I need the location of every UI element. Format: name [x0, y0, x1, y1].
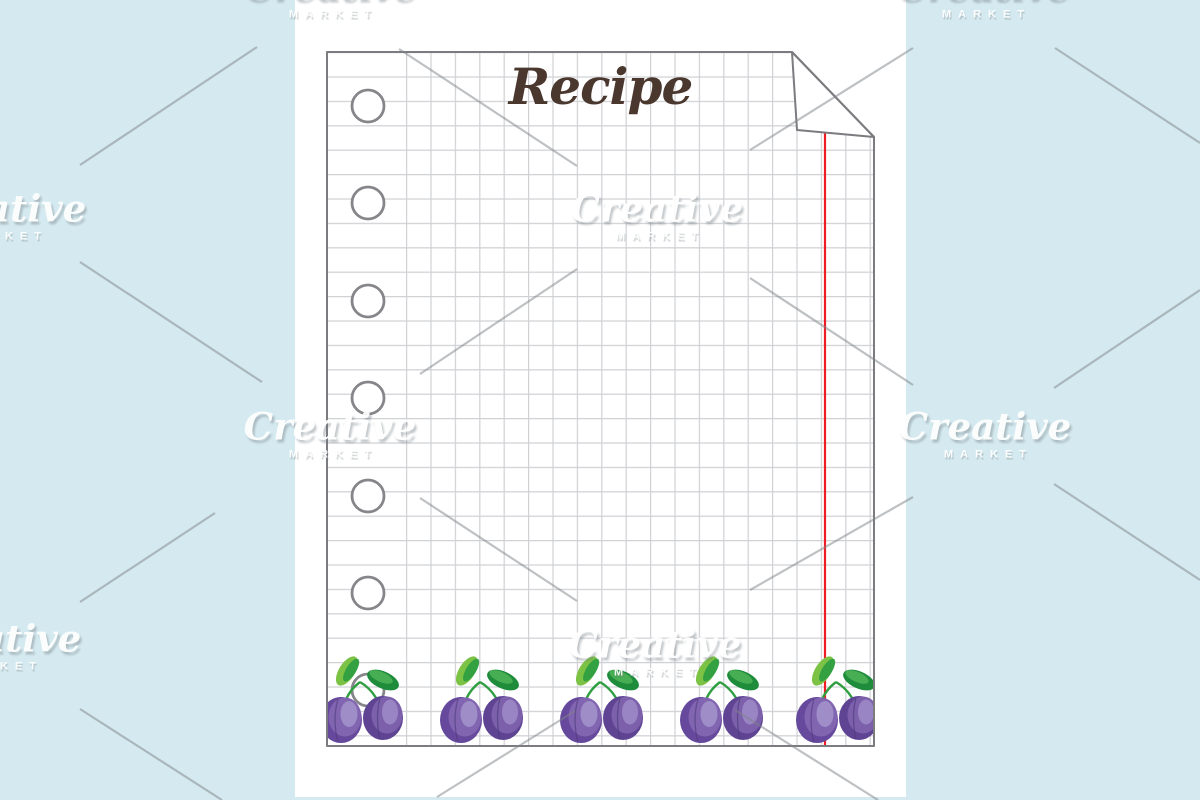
watermark-script-text: Creative — [244, 408, 417, 446]
watermark-logo: CreativeMARKET — [899, 408, 1072, 461]
watermark-logo: CreativeMARKET — [0, 620, 81, 673]
watermark-script-text: Creative — [571, 190, 744, 228]
watermark-caps-text: MARKET — [571, 231, 744, 243]
watermark-script-text: Creative — [0, 190, 86, 228]
watermark-logo: CreativeMARKET — [0, 190, 86, 243]
watermark-logos: CreativeMARKETCreativeMARKETCreativeMARK… — [0, 0, 1200, 800]
watermark-caps-text: MARKET — [899, 449, 1072, 461]
watermark-script-text: Creative — [569, 626, 742, 664]
watermark-caps-text: MARKET — [0, 231, 86, 243]
background: Recipe CreativeMARKETCreativeMARKETCreat… — [0, 0, 1200, 800]
watermark-script-text: Creative — [899, 408, 1072, 446]
watermark-caps-text: MARKET — [244, 9, 417, 21]
watermark-logo: CreativeMARKET — [897, 0, 1070, 21]
watermark-caps-text: MARKET — [569, 667, 742, 679]
watermark-script-text: Creative — [897, 0, 1070, 6]
watermark-logo: CreativeMARKET — [244, 408, 417, 461]
watermark-caps-text: MARKET — [244, 449, 417, 461]
watermark-logo: CreativeMARKET — [571, 190, 744, 243]
watermark-caps-text: MARKET — [0, 661, 81, 673]
watermark-caps-text: MARKET — [897, 9, 1070, 21]
watermark-script-text: Creative — [0, 620, 81, 658]
watermark-logo: CreativeMARKET — [244, 0, 417, 21]
watermark-script-text: Creative — [244, 0, 417, 6]
watermark-logo: CreativeMARKET — [569, 626, 742, 679]
